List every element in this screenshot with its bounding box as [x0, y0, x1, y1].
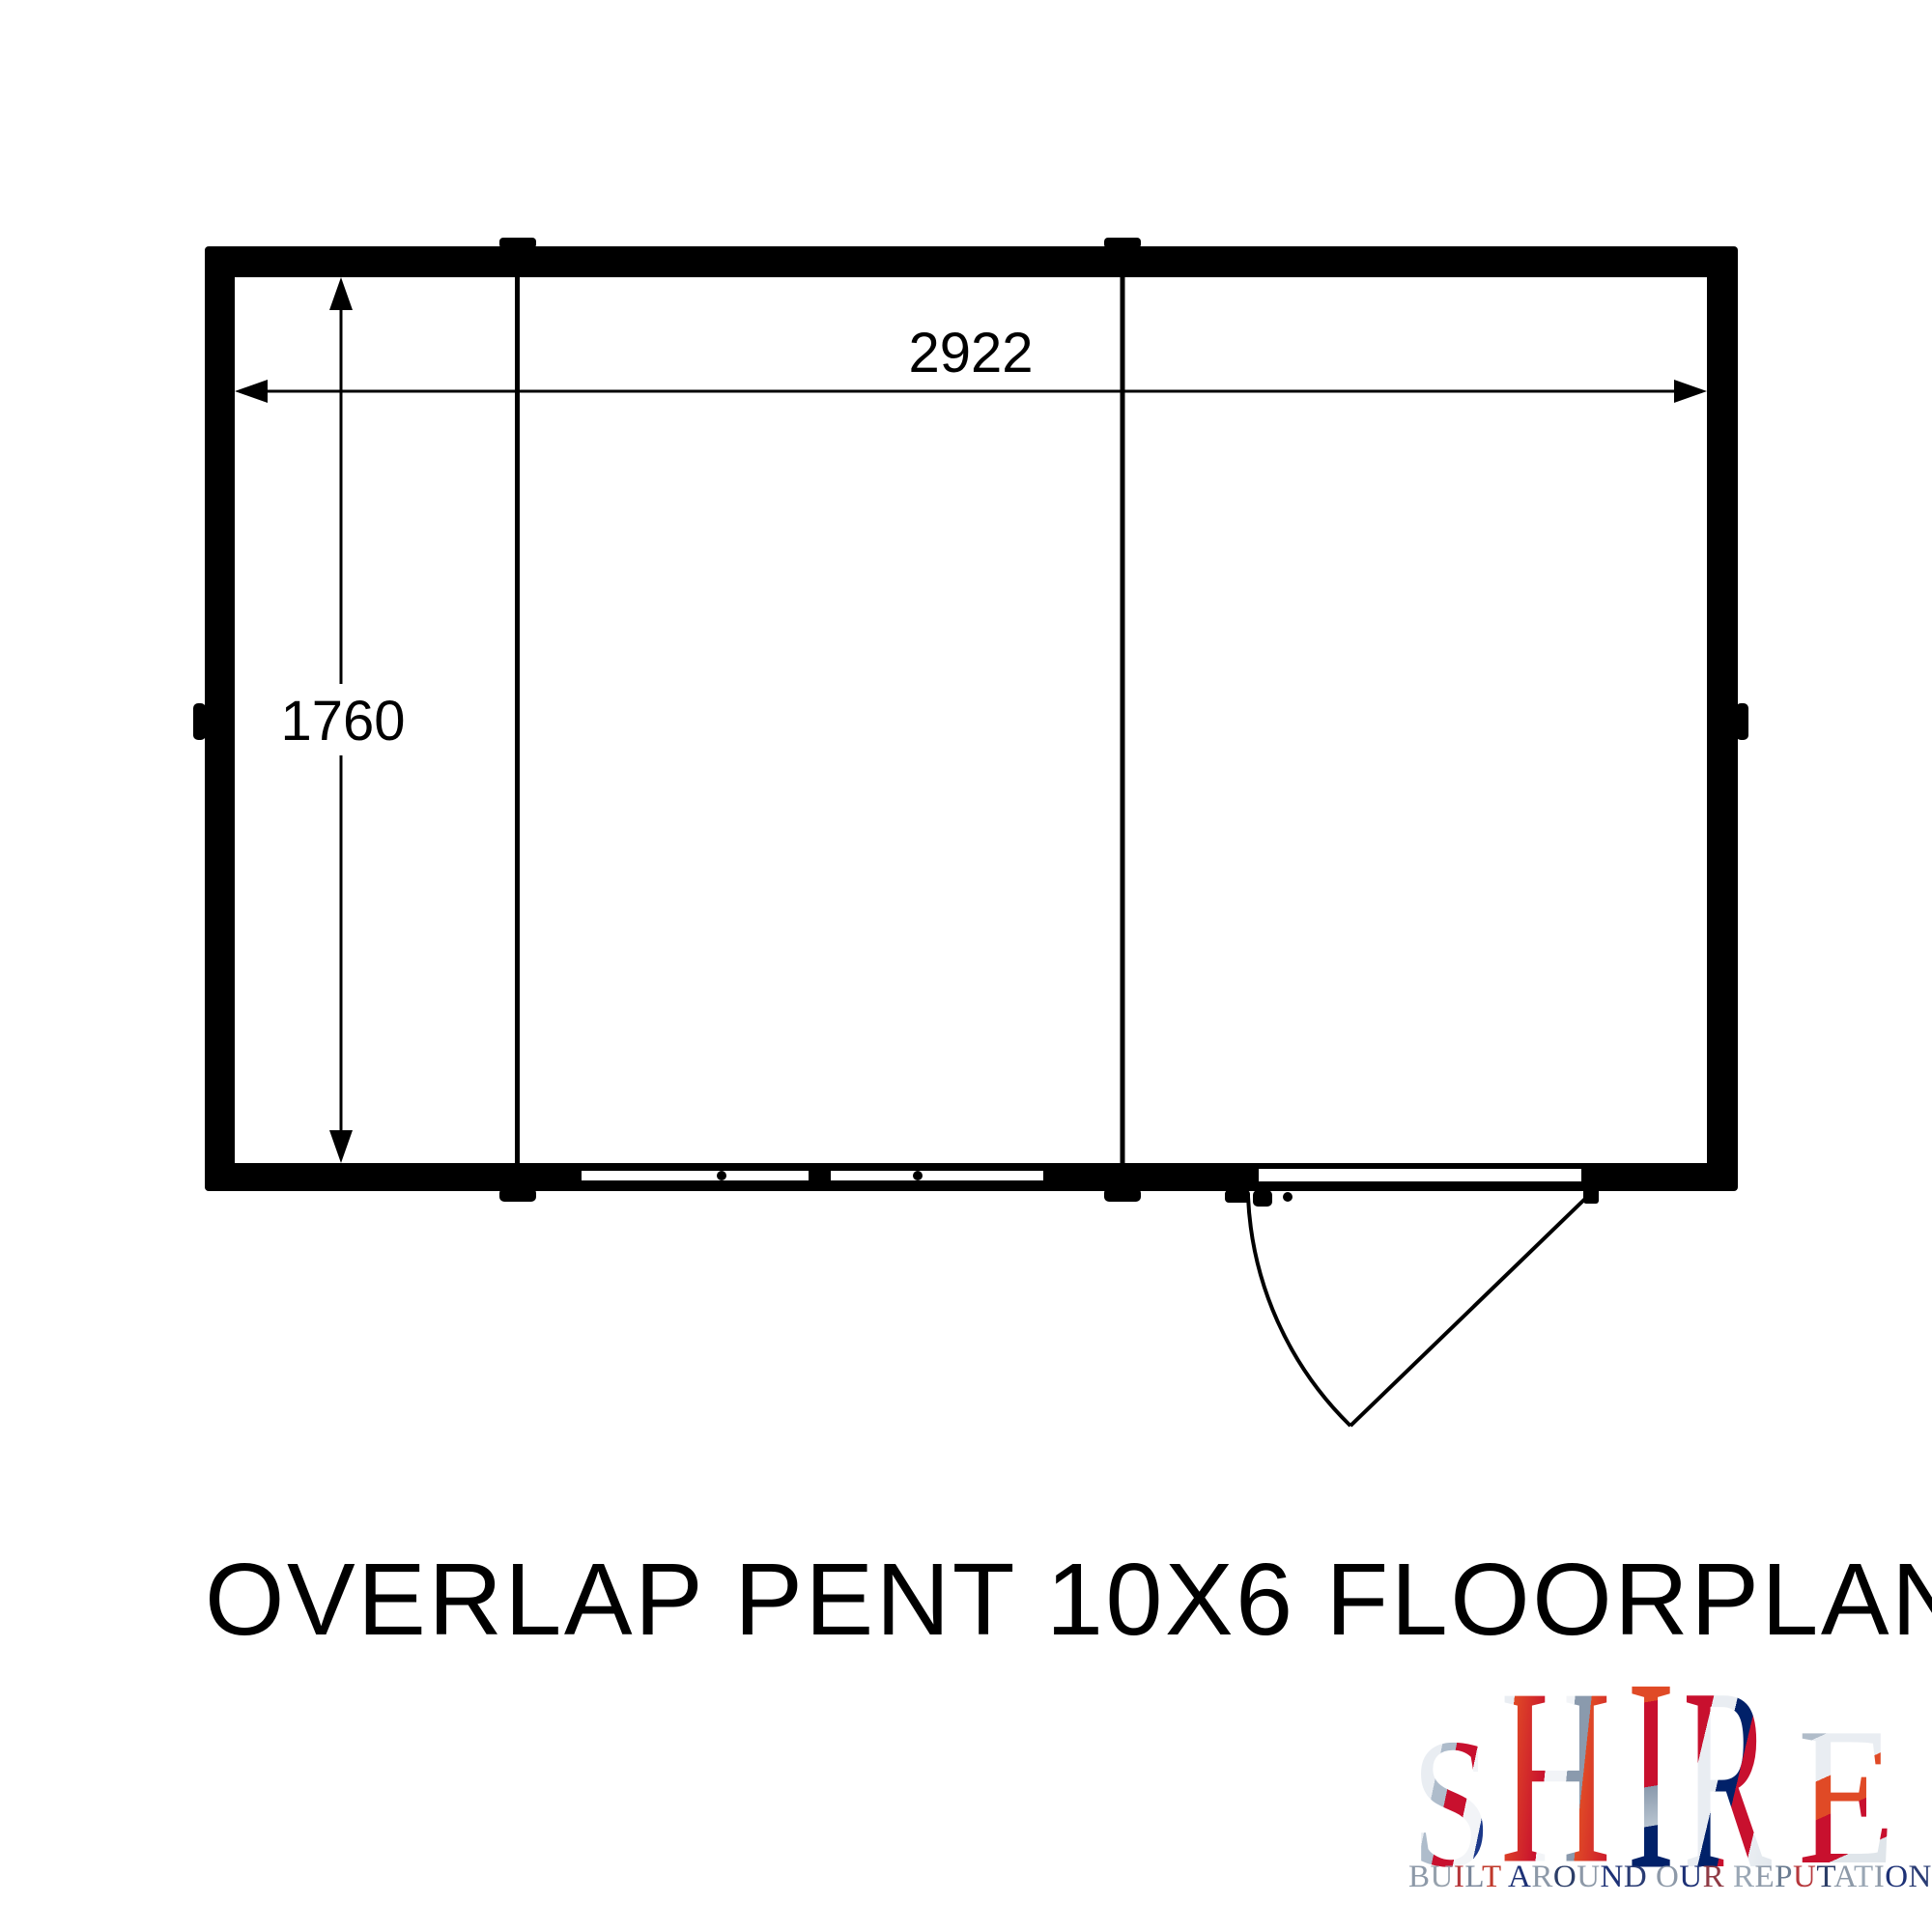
logo-tagline-letter: B [1408, 1860, 1431, 1894]
logo-tagline-letter: U [1679, 1860, 1702, 1894]
logo-tagline-letter: O [1656, 1860, 1679, 1894]
logo-tagline-letter: E [1754, 1860, 1775, 1894]
door-jamb-tab [1225, 1190, 1250, 1203]
logo-tagline-letter: O [1553, 1860, 1577, 1894]
shire-logo: SHIRE BUILT AROUND OUR REPUTATION [1391, 1642, 1918, 1903]
door-leaf [1350, 1195, 1589, 1426]
logo-tagline-letter: N [1909, 1860, 1932, 1894]
logo-tagline-letter: R [1703, 1860, 1725, 1894]
logo-tagline-letter [1501, 1860, 1508, 1894]
logo-tagline-letter [1724, 1860, 1733, 1894]
logo-tagline-letter [1647, 1860, 1656, 1894]
logo-tagline-letter: T [1816, 1860, 1833, 1894]
window-catch-right [913, 1171, 923, 1180]
door-latch-dot [1283, 1192, 1293, 1202]
door-latch-tab [1253, 1190, 1272, 1207]
logo-tagline-letter: A [1508, 1860, 1531, 1894]
left-wall-joint-tab [193, 703, 206, 740]
logo-tagline-letter: R [1733, 1860, 1755, 1894]
logo-tagline-letter: N [1601, 1860, 1624, 1894]
bottom-wall-joint-tab-left [499, 1188, 536, 1202]
logo-tagline-letter: U [1793, 1860, 1816, 1894]
door-swing-arc [1248, 1197, 1350, 1426]
logo-tagline-letter: I [1874, 1860, 1886, 1894]
top-wall-joint-tab-right [1104, 238, 1141, 248]
logo-tagline: BUILT AROUND OUR REPUTATION [1408, 1861, 1911, 1893]
floorplan-page: 2922 1760 OVERLAP PENT 10X6 FLOORPLAN SH… [0, 0, 1932, 1932]
logo-tagline-letter: T [1854, 1860, 1874, 1894]
page-title: OVERLAP PENT 10X6 FLOORPLAN [205, 1548, 1738, 1651]
logo-tagline-letter: U [1431, 1860, 1454, 1894]
logo-tagline-letter: A [1833, 1860, 1854, 1894]
window-slot-left [582, 1171, 809, 1180]
top-wall-joint-tab-left [499, 238, 536, 248]
logo-tagline-letter: T [1482, 1860, 1501, 1894]
logo-tagline-letter: P [1775, 1860, 1793, 1894]
logo-tagline-letter: O [1885, 1860, 1908, 1894]
logo-tagline-letter: I [1454, 1860, 1465, 1894]
window-slot-right [831, 1171, 1043, 1180]
door-opening [1259, 1169, 1581, 1181]
width-dimension-label: 2922 [908, 322, 1033, 384]
logo-tagline-letter: R [1531, 1860, 1553, 1894]
logo-tagline-letter: D [1624, 1860, 1647, 1894]
logo-tagline-letter: U [1577, 1860, 1600, 1894]
floor-area [235, 277, 1707, 1163]
bottom-wall-joint-tab-right [1104, 1188, 1141, 1202]
height-dimension-label: 1760 [280, 690, 405, 753]
right-wall-joint-tab [1736, 703, 1748, 740]
window-catch-left [717, 1171, 726, 1180]
logo-tagline-letter: L [1464, 1860, 1482, 1894]
